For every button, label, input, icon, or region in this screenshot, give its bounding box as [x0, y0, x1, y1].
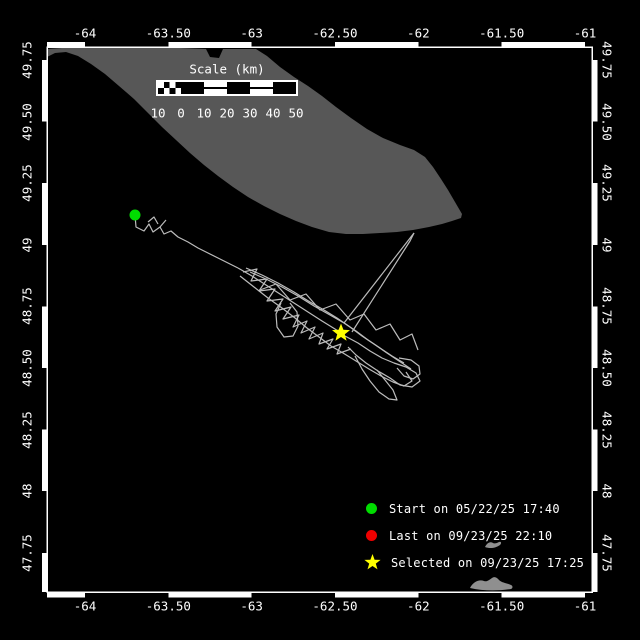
legend-item-selected: Selected on 09/23/25 17:25 [363, 549, 584, 576]
frame-zebra-bottom [502, 593, 585, 598]
whale-icon-large [470, 577, 513, 590]
scalebar-segment-line [204, 87, 227, 89]
plot-window: -64-63.50-63-62.50-62-61.50-61-64-63.50-… [0, 0, 640, 640]
legend-label-start: Start on 05/22/25 17:40 [389, 502, 560, 516]
track-path [238, 268, 341, 333]
scalebar-checker [164, 82, 170, 88]
scalebar-checker [175, 88, 181, 94]
legend-item-last: Last on 09/23/25 22:10 [363, 522, 584, 549]
scalebar-checker [175, 82, 181, 88]
track-path [148, 217, 158, 224]
frame-zebra-right [593, 553, 598, 592]
frame-zebra-bottom [168, 593, 251, 598]
scalebar-segment [181, 82, 204, 94]
selected-marker[interactable] [332, 324, 350, 341]
legend: Start on 05/22/25 17:40 Last on 09/23/25… [363, 495, 584, 576]
scalebar-checker [158, 88, 164, 94]
track-path [240, 276, 412, 386]
last-dot-icon [363, 527, 380, 544]
frame-zebra-bottom [335, 593, 418, 598]
frame-zebra-right [593, 60, 598, 122]
frame-zebra-bottom [47, 593, 85, 598]
scalebar-checker [164, 88, 170, 94]
track-path [352, 233, 414, 332]
scalebar-segment [273, 82, 296, 94]
frame-zebra-right [593, 183, 598, 245]
legend-item-start: Start on 05/22/25 17:40 [363, 495, 584, 522]
legend-label-last: Last on 09/23/25 22:10 [389, 529, 552, 543]
track-path [135, 215, 238, 268]
scalebar-checker [158, 82, 164, 88]
track-path [344, 233, 414, 323]
start-marker[interactable] [130, 210, 141, 221]
scalebar-segment [227, 82, 250, 94]
track-path [160, 220, 166, 227]
scalebar-checker [170, 82, 176, 88]
selected-star-icon [363, 553, 382, 572]
frame-zebra-right [593, 306, 598, 368]
scalebar-segment-line [250, 87, 273, 89]
track-path [246, 268, 411, 369]
scalebar-title: Scale (km) [189, 62, 264, 77]
scalebar-checker [170, 88, 176, 94]
frame-zebra-right [593, 430, 598, 492]
start-dot-icon [363, 500, 380, 517]
legend-label-selected: Selected on 09/23/25 17:25 [391, 556, 584, 570]
